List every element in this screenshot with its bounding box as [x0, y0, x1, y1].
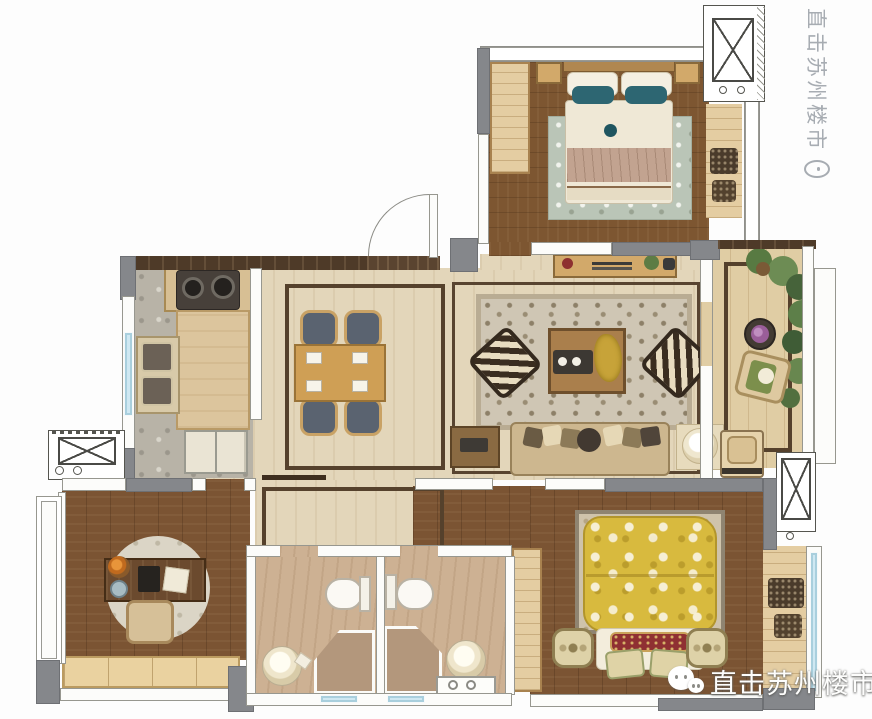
vanity-hole-2	[466, 680, 476, 690]
sink-basin-1	[141, 342, 173, 372]
sofa-pillow-round	[577, 428, 601, 452]
desk-laptop	[138, 566, 160, 592]
wall-bedroom-bottom-gray	[612, 242, 702, 256]
watermark-bottom-text: 直击苏州楼市	[710, 662, 872, 701]
wall-bath-b-right	[505, 556, 515, 695]
balcony-outer-bay	[814, 268, 836, 464]
master-wardrobe	[512, 548, 542, 692]
wall-bath-bottom	[246, 693, 512, 706]
wall-gray-balcony-corner	[690, 240, 720, 260]
bed-foot	[567, 186, 671, 200]
pillow-teal-right	[625, 86, 667, 104]
master-nightstand-left	[552, 628, 594, 668]
shaft-hatch	[757, 7, 765, 100]
decor-books	[592, 262, 632, 265]
burner-2	[211, 275, 235, 299]
bath-b-toilet-bowl	[396, 578, 434, 610]
lounge-pillow	[758, 368, 774, 384]
study-bay-window	[36, 496, 62, 664]
watermark-vertical-text: 直击苏州楼市	[802, 8, 832, 152]
duct-circle	[786, 532, 794, 540]
platform-hatch-edge	[52, 430, 122, 434]
washing-machine-base	[722, 468, 762, 474]
desk-flowers	[108, 556, 130, 578]
wall-gray-bedroom-left	[477, 48, 490, 134]
wall-window-bedroom-top	[480, 46, 708, 62]
dining-chair-3	[300, 398, 338, 436]
plant-soil	[756, 262, 770, 276]
wall-balcony-right	[802, 246, 814, 470]
bed-blanket-band	[567, 148, 671, 182]
wall-study-top-3	[244, 478, 256, 491]
side-table-tray	[460, 438, 488, 452]
dining-chair-1	[300, 310, 338, 348]
master-balcony-cushion-1	[768, 578, 804, 608]
person-doodle-logo-icon	[804, 160, 830, 178]
sofa-pillow-6	[640, 426, 661, 447]
duct-x-symbol	[781, 458, 811, 520]
wall-master-right-gray	[763, 478, 777, 550]
bath-b-basin	[446, 640, 486, 680]
desk-clock	[110, 580, 128, 598]
sink-basin-2	[141, 376, 173, 406]
platform-circle-1	[55, 466, 64, 475]
elevator-x-symbol	[712, 18, 754, 82]
decor-dark-item	[663, 258, 675, 270]
bench-cushion-1	[710, 148, 738, 174]
hallway-floor-inlay	[262, 487, 444, 549]
wall-master-top-gray	[605, 478, 763, 492]
bath-a-basin	[262, 646, 302, 686]
entry-door-leaf	[429, 194, 438, 258]
balcony-door-gap	[701, 302, 712, 366]
wall-study-bottom	[60, 688, 232, 701]
wall-bath-mid	[376, 556, 385, 695]
master-balcony-cushion-2	[774, 614, 802, 638]
nightstand-right	[674, 62, 700, 84]
platform-x-symbol	[58, 437, 116, 465]
entry-column	[450, 238, 478, 272]
kitchen-counter-side	[176, 310, 250, 430]
duvet-fold-line	[586, 574, 714, 577]
dining-chair-2	[344, 310, 382, 348]
entry-door-swing-arc	[368, 194, 430, 256]
dining-chair-4	[344, 398, 382, 436]
wall-window-bedroom-right	[744, 100, 760, 242]
window-bath-a	[320, 695, 358, 703]
floor-plan: 直击苏州楼市 直击苏州楼市	[0, 0, 872, 719]
study-bench	[62, 656, 240, 688]
placemat-4	[352, 380, 368, 392]
desk-paper	[162, 566, 189, 593]
bath-a-toilet-tank	[359, 576, 371, 612]
wall-hall-top-1	[415, 478, 493, 490]
wall-bedroom-bottom-white	[531, 242, 612, 255]
master-cushion-1	[605, 648, 646, 680]
cabinet-divider	[215, 430, 217, 474]
wall-bath-a-left	[246, 556, 256, 695]
window-bath-b	[387, 695, 425, 703]
wechat-logo-icon	[668, 664, 700, 698]
wall-gray-kitchen-corner	[120, 256, 136, 300]
watermark-bottom: 直击苏州楼市	[668, 658, 872, 704]
bench-cushion-2	[712, 180, 736, 202]
threshold-bar	[262, 475, 326, 480]
placemat-3	[306, 380, 322, 392]
wall-top-kitchen	[120, 256, 367, 270]
platform-circle-2	[73, 466, 82, 475]
door-gap-bedroom-top	[489, 242, 531, 256]
wall-gray-corner-bottom-left	[36, 660, 60, 704]
vanity-hole-1	[448, 680, 458, 690]
pillow-teal-left	[572, 86, 614, 104]
decor-plant	[644, 255, 659, 270]
window-kitchen	[124, 332, 133, 416]
washing-machine-lid	[727, 436, 757, 464]
bed-teal-accent	[604, 124, 617, 137]
study-door-gap	[206, 479, 244, 491]
flower-purple	[751, 325, 769, 343]
wall-study-top-1	[62, 478, 126, 491]
wall-bedroom-left-lower	[478, 134, 489, 244]
placemat-2	[352, 352, 368, 364]
wechat-bubble-small	[688, 678, 704, 693]
wall-study-top-2	[192, 478, 206, 491]
bath-b-door-gap	[400, 546, 438, 557]
burner-1	[182, 277, 204, 299]
wall-master-top-white	[545, 478, 605, 490]
wall-kitchen-dining	[250, 268, 262, 420]
master-red-pillow	[610, 632, 690, 652]
bath-a-toilet-bowl	[325, 578, 363, 610]
shaft-circle-1	[719, 86, 727, 94]
watermark-vertical: 直击苏州楼市	[804, 8, 830, 178]
decor-red-vase	[562, 258, 573, 269]
tray-cup-1	[558, 357, 567, 366]
bedroom-top-wardrobe	[490, 62, 530, 174]
wall-study-top-gray	[126, 478, 192, 492]
tray-cup-2	[572, 357, 581, 366]
placemat-1	[306, 352, 322, 364]
study-chair	[126, 600, 174, 644]
entry-threshold	[367, 256, 440, 270]
shaft-circle-2	[737, 86, 745, 94]
bath-a-door-gap	[280, 546, 318, 557]
nightstand-left	[536, 62, 562, 84]
